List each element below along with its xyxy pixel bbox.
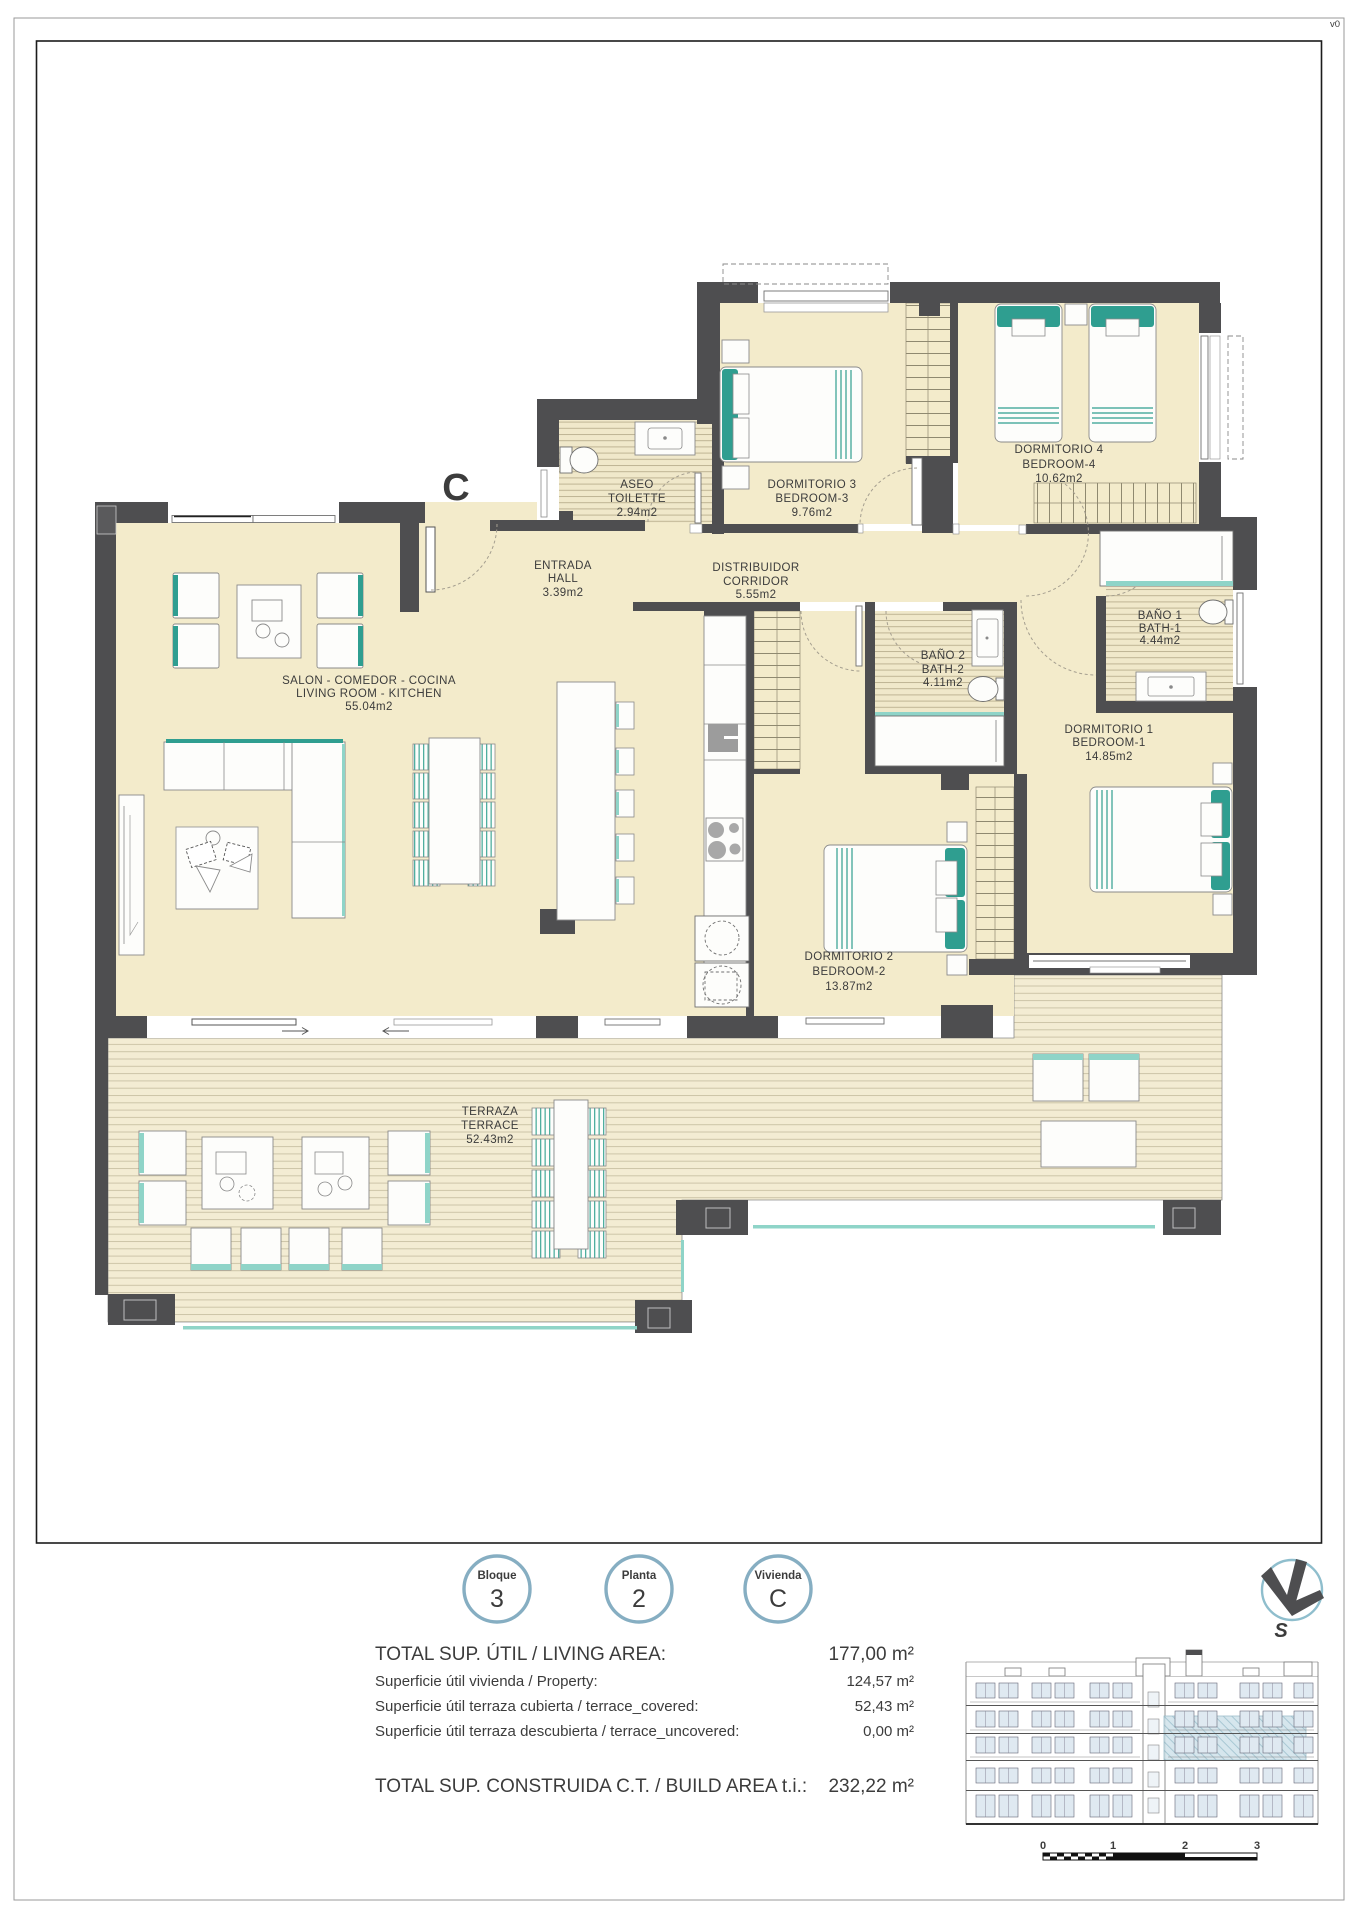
svg-text:124,57 m²: 124,57 m² bbox=[846, 1673, 914, 1690]
svg-text:ASEO: ASEO bbox=[620, 479, 654, 491]
svg-text:BEDROOM-1: BEDROOM-1 bbox=[1072, 737, 1145, 749]
svg-text:14.85m2: 14.85m2 bbox=[1085, 751, 1133, 763]
svg-text:10.62m2: 10.62m2 bbox=[1035, 473, 1083, 485]
svg-text:2: 2 bbox=[632, 1585, 646, 1613]
svg-text:BAÑO 2: BAÑO 2 bbox=[921, 649, 966, 662]
svg-text:232,22 m²: 232,22 m² bbox=[828, 1776, 914, 1797]
svg-text:3.39m2: 3.39m2 bbox=[543, 587, 584, 599]
svg-text:DISTRIBUIDOR: DISTRIBUIDOR bbox=[712, 562, 799, 574]
svg-text:3: 3 bbox=[490, 1585, 504, 1613]
svg-text:DORMITORIO 4: DORMITORIO 4 bbox=[1015, 444, 1104, 456]
svg-text:0,00 m²: 0,00 m² bbox=[863, 1723, 914, 1740]
svg-text:Superficie útil vivienda / Pro: Superficie útil vivienda / Property: bbox=[375, 1673, 598, 1690]
svg-text:BATH-1: BATH-1 bbox=[1139, 623, 1181, 635]
svg-text:177,00 m²: 177,00 m² bbox=[828, 1644, 914, 1665]
svg-text:DORMITORIO 3: DORMITORIO 3 bbox=[768, 479, 857, 491]
svg-text:CORRIDOR: CORRIDOR bbox=[723, 576, 789, 588]
svg-text:Planta: Planta bbox=[622, 1570, 657, 1582]
svg-text:v0: v0 bbox=[1330, 19, 1340, 30]
svg-text:TERRACE: TERRACE bbox=[461, 1120, 519, 1132]
svg-text:S: S bbox=[1274, 1620, 1288, 1642]
svg-text:BEDROOM-4: BEDROOM-4 bbox=[1022, 459, 1095, 471]
svg-text:55.04m2: 55.04m2 bbox=[345, 701, 393, 713]
svg-text:Bloque: Bloque bbox=[478, 1570, 517, 1582]
svg-text:Superficie útil terraza descub: Superficie útil terraza descubierta / te… bbox=[375, 1723, 739, 1740]
svg-text:9.76m2: 9.76m2 bbox=[792, 507, 833, 519]
svg-text:4.11m2: 4.11m2 bbox=[923, 677, 963, 689]
svg-text:5.55m2: 5.55m2 bbox=[736, 589, 777, 601]
svg-text:1: 1 bbox=[1110, 1840, 1116, 1852]
svg-text:2: 2 bbox=[1182, 1840, 1188, 1852]
svg-text:TERRAZA: TERRAZA bbox=[462, 1106, 518, 1118]
svg-text:52.43m2: 52.43m2 bbox=[466, 1134, 514, 1146]
svg-text:TOTAL SUP. CONSTRUIDA C.T. / B: TOTAL SUP. CONSTRUIDA C.T. / BUILD AREA … bbox=[375, 1776, 807, 1797]
svg-text:BEDROOM-2: BEDROOM-2 bbox=[812, 966, 885, 978]
svg-text:4.44m2: 4.44m2 bbox=[1140, 635, 1181, 647]
svg-text:Superficie útil terraza cubier: Superficie útil terraza cubierta / terra… bbox=[375, 1698, 699, 1715]
svg-text:2.94m2: 2.94m2 bbox=[617, 507, 658, 519]
svg-text:C: C bbox=[442, 467, 469, 509]
svg-text:Vivienda: Vivienda bbox=[754, 1570, 802, 1582]
svg-text:13.87m2: 13.87m2 bbox=[825, 981, 873, 993]
svg-text:SALON - COMEDOR - COCINA: SALON - COMEDOR - COCINA bbox=[282, 675, 456, 687]
svg-text:LIVING ROOM - KITCHEN: LIVING ROOM - KITCHEN bbox=[296, 688, 442, 700]
svg-text:TOTAL SUP. ÚTIL / LIVING AREA:: TOTAL SUP. ÚTIL / LIVING AREA: bbox=[375, 1643, 666, 1665]
svg-text:BATH-2: BATH-2 bbox=[922, 664, 964, 676]
svg-text:DORMITORIO 1: DORMITORIO 1 bbox=[1065, 724, 1154, 736]
svg-text:52,43 m²: 52,43 m² bbox=[855, 1698, 914, 1715]
svg-text:BAÑO 1: BAÑO 1 bbox=[1138, 609, 1183, 622]
svg-text:HALL: HALL bbox=[548, 573, 579, 585]
svg-text:3: 3 bbox=[1254, 1840, 1260, 1852]
svg-text:DORMITORIO 2: DORMITORIO 2 bbox=[805, 951, 894, 963]
svg-text:0: 0 bbox=[1040, 1840, 1046, 1852]
svg-text:TOILETTE: TOILETTE bbox=[608, 493, 666, 505]
svg-text:ENTRADA: ENTRADA bbox=[534, 560, 592, 572]
svg-text:C: C bbox=[769, 1585, 787, 1613]
svg-text:BEDROOM-3: BEDROOM-3 bbox=[775, 493, 848, 505]
